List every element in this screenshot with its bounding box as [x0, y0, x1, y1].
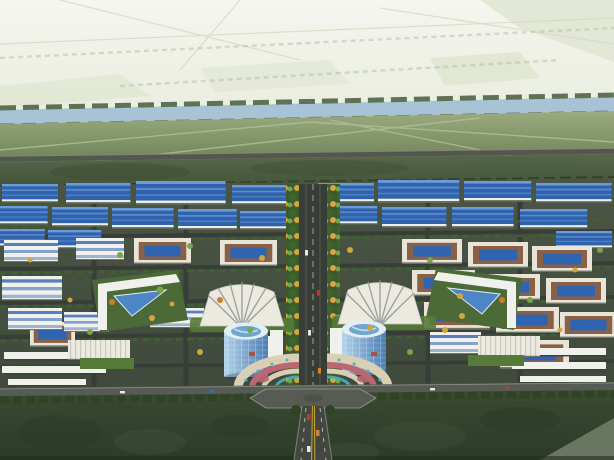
factory-building: [520, 209, 587, 229]
office-building: [2, 276, 62, 300]
factory-building: [66, 183, 130, 204]
plaza-intersection: [250, 389, 376, 408]
convention-hall-right: [478, 336, 540, 357]
office-building: [134, 238, 191, 264]
convention-hall-left: [68, 340, 130, 360]
plaza-pavilion: [371, 352, 377, 356]
office-building: [430, 332, 481, 354]
office-building: [546, 278, 606, 304]
factory-building: [178, 209, 237, 230]
industrial-zone: [0, 178, 614, 398]
office-building: [220, 240, 277, 266]
office-building: [532, 246, 592, 272]
factory-building: [556, 231, 612, 249]
factory-building: [2, 184, 58, 203]
roof-garden-right: [468, 355, 524, 366]
plaza-pavilion: [249, 352, 255, 356]
factory-building: [382, 207, 446, 228]
factory-building: [536, 183, 612, 203]
roof-garden-left: [80, 358, 134, 369]
factory-building: [464, 181, 531, 202]
factory-building: [112, 208, 174, 229]
factory-building: [240, 211, 293, 230]
office-building: [8, 308, 62, 330]
office-building: [560, 312, 614, 338]
factory-building: [232, 185, 291, 205]
factory-building: [0, 206, 48, 225]
factory-building: [52, 207, 108, 227]
aerial-rendering: [0, 0, 614, 460]
factory-building: [378, 180, 459, 203]
factory-building: [136, 181, 226, 205]
office-building: [76, 238, 124, 260]
office-building: [468, 242, 528, 268]
factory-building: [452, 207, 514, 228]
